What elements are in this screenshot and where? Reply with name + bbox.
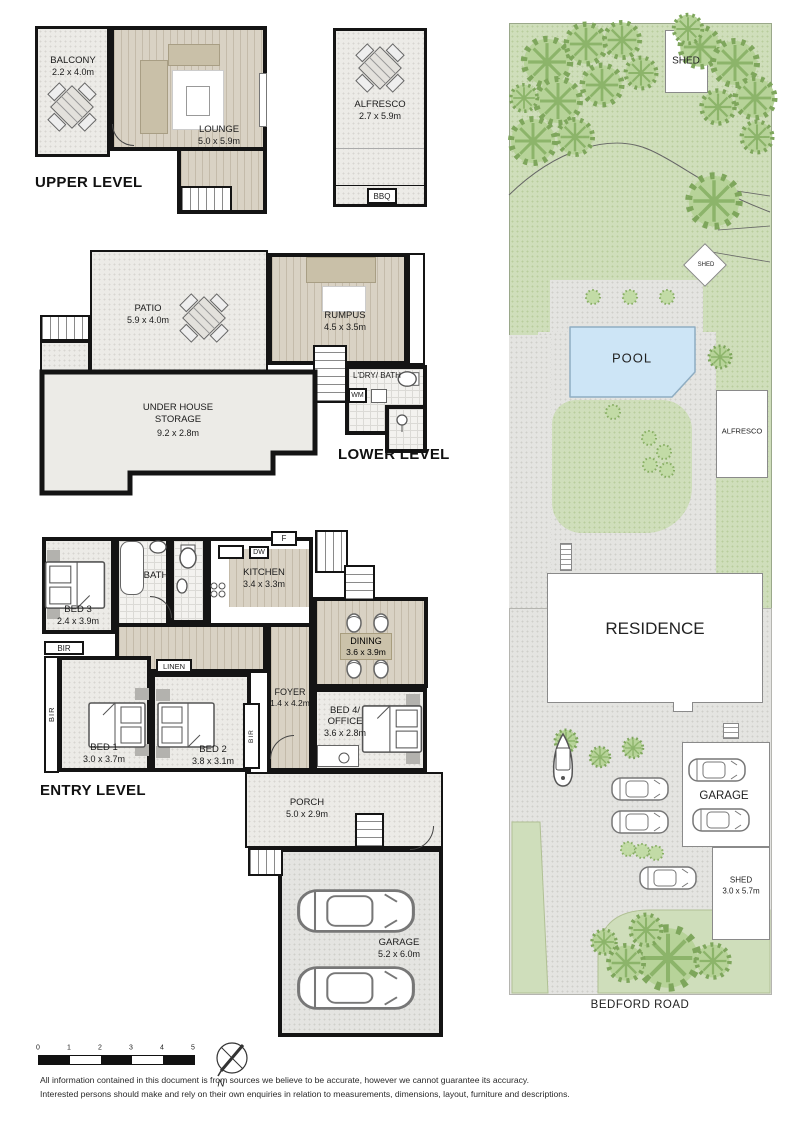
- lounge-stairs: [180, 186, 232, 212]
- washing-machine-label: WM: [348, 388, 367, 403]
- fridge-label: F: [271, 531, 297, 546]
- scale-tick: 3: [129, 1045, 133, 1052]
- balcony-dims: 2.2 x 4.0m: [52, 67, 94, 78]
- foyer-dims: 1.4 x 4.2m: [270, 698, 310, 709]
- room-patio: [90, 250, 268, 372]
- bath-label: BATH: [144, 570, 169, 582]
- wardrobe-block: [47, 550, 60, 561]
- site-residence-label: RESIDENCE: [605, 619, 704, 639]
- room-wc: [170, 537, 207, 624]
- bed3-dims: 2.4 x 3.9m: [57, 616, 99, 627]
- balcony-label: BALCONY: [50, 55, 95, 67]
- floorplan-document: BBQ WM F DW BIR BIR BIR LINEN DINING 3.6…: [0, 0, 800, 1132]
- dining-label-box: DINING 3.6 x 3.9m: [340, 633, 392, 660]
- bed1-label: BED 1: [90, 742, 117, 754]
- site-road-label: BEDFORD ROAD: [591, 999, 690, 1011]
- scale-tick: 5: [191, 1045, 195, 1052]
- room-balcony: [35, 26, 110, 157]
- site-alfresco-label: ALFRESCO: [722, 427, 762, 436]
- kitchen-label: KITCHEN: [243, 567, 285, 579]
- alfresco-label: ALFRESCO: [354, 99, 405, 111]
- scale-segment: [39, 1056, 70, 1064]
- bir-label: BIR: [44, 641, 84, 655]
- bir-wardrobe: BIR: [243, 703, 260, 769]
- dining-stairs: [344, 565, 375, 601]
- rumpus-stairs: [313, 345, 347, 403]
- rumpus-dims: 4.5 x 3.5m: [324, 322, 366, 333]
- kitchen-dims: 3.4 x 3.3m: [243, 579, 285, 590]
- scale-segment: [132, 1056, 163, 1064]
- site-steps: [560, 543, 572, 571]
- divider: [336, 148, 424, 149]
- garage-dims: 5.2 x 6.0m: [378, 949, 420, 960]
- scale-segment: [70, 1056, 101, 1064]
- site-shed-small-label: SHED: [698, 262, 715, 268]
- bed3-label: BED 3: [64, 604, 91, 616]
- laundry-sink-icon: [371, 389, 387, 403]
- bed1-dims: 3.0 x 3.7m: [83, 754, 125, 765]
- porch-stairs: [355, 813, 384, 848]
- divider: [336, 185, 424, 186]
- patio-dims: 5.9 x 4.0m: [127, 315, 169, 326]
- wardrobe-block: [406, 752, 420, 764]
- garage-label: GARAGE: [379, 937, 420, 949]
- dining-label: DINING: [350, 636, 382, 647]
- wardrobe-block: [135, 744, 149, 756]
- porch-dims: 5.0 x 2.9m: [286, 809, 328, 820]
- bir-wardrobe: BIR: [44, 656, 59, 773]
- rug-icon: [322, 286, 366, 312]
- compass-icon: [217, 1043, 247, 1076]
- patio-landing: [40, 341, 90, 373]
- wardrobe-block: [135, 688, 149, 700]
- alfresco-dims: 2.7 x 5.9m: [359, 111, 401, 122]
- wardrobe-block: [406, 694, 420, 706]
- scale-segment: [163, 1056, 194, 1064]
- scale-tick: 0: [36, 1045, 40, 1052]
- entry-level-title: ENTRY LEVEL: [40, 782, 146, 799]
- dishwasher-label: DW: [249, 546, 269, 559]
- storage-dims: 9.2 x 2.8m: [157, 428, 199, 439]
- site-garage-label: GARAGE: [699, 790, 748, 802]
- scale-tick: 2: [98, 1045, 102, 1052]
- scale-bar-segments: [38, 1055, 195, 1065]
- foyer-label: FOYER: [274, 687, 305, 698]
- bed2-label: BED 2: [199, 744, 226, 756]
- storage-label: UNDER HOUSE STORAGE: [143, 402, 213, 426]
- site-side-path: [509, 335, 551, 608]
- linen-label: LINEN: [156, 659, 192, 673]
- sofa-icon: [168, 44, 220, 66]
- kitchen-sink-icon: [218, 545, 244, 559]
- wardrobe-block: [156, 689, 170, 701]
- site-steps: [723, 723, 739, 739]
- laundry-bath-label: L'DRY/ BATH: [353, 371, 401, 381]
- desk-icon: [317, 745, 359, 767]
- lounge-label: LOUNGE: [199, 124, 239, 136]
- site-shed-bottom-label: SHED: [730, 876, 752, 885]
- sofa-icon: [306, 257, 376, 283]
- bed2-dims: 3.8 x 3.1m: [192, 756, 234, 767]
- site-shed-top-label: SHED: [672, 56, 700, 67]
- site-pool-label: POOL: [612, 351, 652, 366]
- rumpus-label: RUMPUS: [324, 310, 365, 322]
- rumpus-deck: [408, 253, 425, 365]
- sofa-icon: [140, 60, 168, 134]
- lounge-dims: 5.0 x 5.9m: [198, 136, 240, 147]
- scale-tick: 1: [67, 1045, 71, 1052]
- scale-bar: 0 1 2 3 4 5: [38, 1043, 198, 1067]
- bathtub-icon: [120, 541, 144, 595]
- site-shed-bottom-dims: 3.0 x 5.7m: [722, 887, 759, 896]
- scale-segment: [101, 1056, 132, 1064]
- bed4-dims: 3.6 x 2.8m: [324, 728, 366, 739]
- side-steps: [248, 848, 283, 876]
- disclaimer-line1: All information contained in this docume…: [40, 1075, 529, 1085]
- coffee-table-icon: [186, 86, 210, 116]
- scale-tick: 4: [160, 1045, 164, 1052]
- porch-label: PORCH: [290, 797, 324, 809]
- lower-level-title: LOWER LEVEL: [338, 446, 450, 463]
- upper-level-title: UPPER LEVEL: [35, 174, 143, 191]
- window-icon: [259, 73, 267, 127]
- disclaimer-line2: Interested persons should make and rely …: [40, 1089, 570, 1099]
- wardrobe-block: [156, 746, 170, 758]
- bbq-label: BBQ: [367, 188, 397, 204]
- dining-dims: 3.6 x 3.9m: [346, 647, 386, 657]
- patio-label: PATIO: [134, 303, 161, 315]
- site-lawn-center: [552, 400, 692, 533]
- bed4-label2: OFFICE: [328, 716, 363, 728]
- patio-steps: [40, 315, 90, 341]
- site-residence-tab: [673, 702, 693, 712]
